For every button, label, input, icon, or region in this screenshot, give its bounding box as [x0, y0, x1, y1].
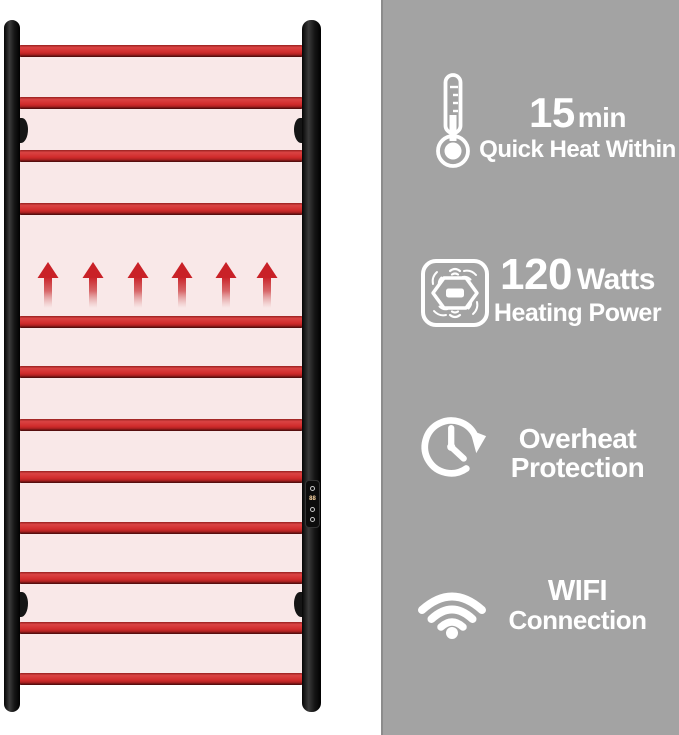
product-feature-image: 88 15min Quick Heat Within — [0, 0, 679, 735]
feature-value: 120 — [500, 250, 572, 299]
feature-label: Heating Power — [460, 300, 679, 326]
feature-value-line: 120Watts — [460, 256, 679, 297]
heat-arrow-icon — [127, 262, 149, 308]
power-icon — [310, 517, 315, 522]
heating-bar — [16, 471, 306, 483]
feature-unit: min — [578, 102, 626, 133]
feature-label-line2: Protection — [460, 453, 679, 482]
heat-arrow-icon — [37, 262, 59, 308]
heating-bar — [16, 203, 306, 215]
feature-label-line1: WIFI — [460, 577, 679, 606]
feature-heating-power: 120Watts Heating Power — [460, 256, 679, 326]
feature-label: Quick Heat Within — [460, 137, 679, 163]
timer-icon — [310, 507, 315, 512]
heating-bar — [16, 316, 306, 328]
heating-bar — [16, 150, 306, 162]
heating-bar — [16, 572, 306, 584]
heat-arrow-icon — [256, 262, 278, 308]
feature-value-line: 15min — [460, 95, 679, 134]
heating-bar — [16, 622, 306, 634]
heating-bar — [16, 97, 306, 109]
feature-unit: Watts — [577, 263, 655, 296]
control-display: 88 — [305, 480, 320, 528]
temperature-readout: 88 — [309, 496, 316, 502]
heat-arrow-icon — [171, 262, 193, 308]
heating-bar — [16, 522, 306, 534]
heat-arrow-icon — [215, 262, 237, 308]
left-rail — [4, 20, 20, 712]
heating-bar — [16, 673, 306, 685]
feature-overheat-protection: Overheat Protection — [460, 424, 679, 482]
heating-bar — [16, 45, 306, 57]
feature-wifi-connection: WIFI Connection — [460, 577, 679, 635]
feature-label-line1: Overheat — [460, 424, 679, 453]
heat-arrow-icon — [82, 262, 104, 308]
feature-label-line2: Connection — [460, 606, 679, 635]
heating-bar — [16, 366, 306, 378]
feature-value: 15 — [529, 89, 575, 136]
right-rail — [302, 20, 321, 712]
heating-bar — [16, 419, 306, 431]
feature-quick-heat: 15min Quick Heat Within — [460, 95, 679, 163]
gear-icon — [310, 486, 315, 491]
